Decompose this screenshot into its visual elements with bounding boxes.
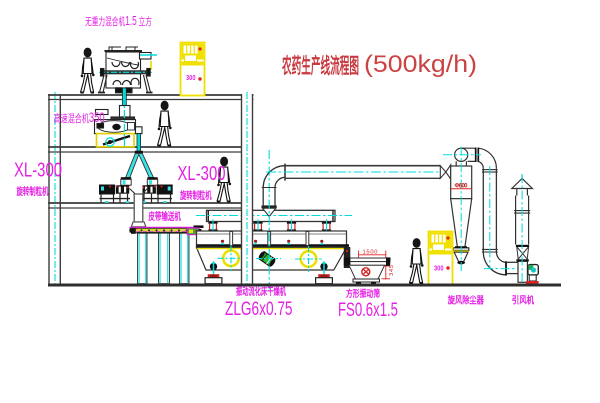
svg-text:1500: 1500: [363, 249, 378, 255]
svg-text:XL-300: XL-300: [178, 162, 226, 185]
svg-text:无重力混合机1.5 立方: 无重力混合机1.5 立方: [85, 13, 152, 28]
svg-text:引风机: 引风机: [512, 295, 535, 307]
svg-text:300: 300: [434, 264, 444, 273]
svg-text:旋转制粒机: 旋转制粒机: [16, 185, 49, 198]
svg-text:旋转制粒机: 旋转制粒机: [179, 189, 211, 202]
svg-text:XL-300: XL-300: [14, 159, 62, 182]
svg-text:振动流化床干燥机: 振动流化床干燥机: [236, 285, 286, 298]
svg-text:旋风除尘器: 旋风除尘器: [447, 295, 484, 307]
svg-text:皮带输送机: 皮带输送机: [148, 210, 181, 223]
svg-text:345: 345: [389, 265, 395, 276]
svg-text:300: 300: [186, 73, 196, 82]
svg-text:Φ600: Φ600: [455, 183, 469, 189]
svg-text:农药生产线流程图: 农药生产线流程图: [282, 54, 359, 78]
svg-text:ZLG6x0.75: ZLG6x0.75: [225, 298, 293, 320]
svg-text:(500kg/h): (500kg/h): [364, 51, 477, 78]
svg-text:FS0.6x1.5: FS0.6x1.5: [338, 299, 398, 321]
